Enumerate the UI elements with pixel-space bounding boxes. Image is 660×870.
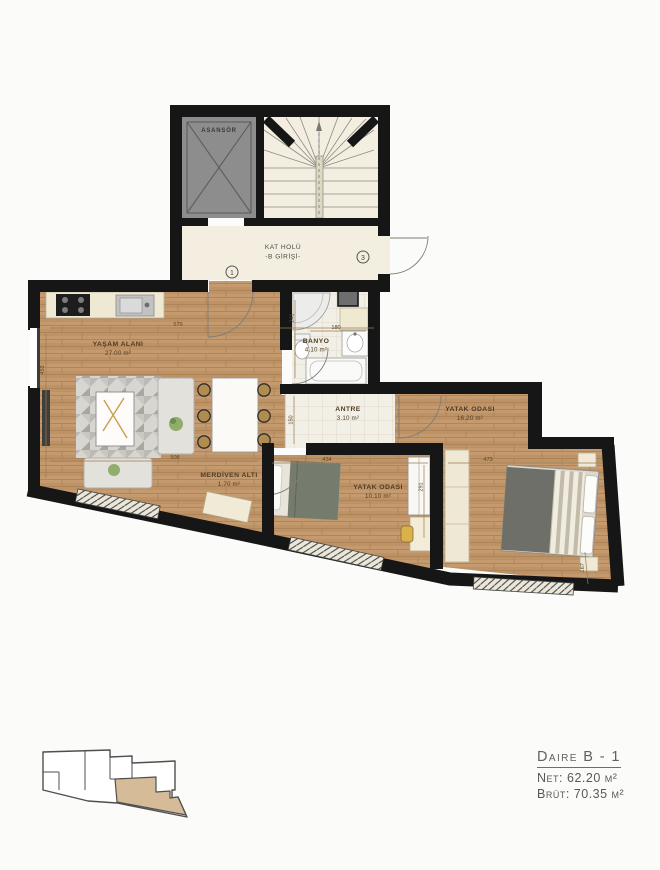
unit-title: Daire B - 1 — [537, 748, 621, 768]
entry-hall-area: 3.10 m² — [337, 415, 359, 422]
desk-chair — [401, 526, 413, 542]
dim-bathroom-left: 241 — [290, 313, 296, 322]
living-room-name: YAŞAM ALANI — [93, 341, 144, 348]
hall-label-line1: KAT HOLÜ — [265, 243, 301, 251]
dim-living-top: 579 — [173, 322, 182, 328]
bathroom-name: BANYO — [303, 338, 330, 345]
pillow — [580, 516, 595, 554]
living-room-area: 27.00 m² — [105, 350, 131, 357]
bedroom-small-area: 10.10 m² — [365, 493, 391, 500]
pillow — [583, 475, 598, 513]
hall-label-line2: -B GİRİŞİ- — [265, 252, 300, 261]
blanket — [501, 467, 557, 553]
plant — [108, 464, 120, 476]
dim-bathroom-top: 180 — [331, 325, 340, 331]
stove — [56, 294, 90, 316]
brut-label: Brüt: — [537, 787, 570, 801]
bedroom-large-area: 16.20 m² — [457, 415, 483, 422]
floor-plan-stage: 579 453 508 241 180 150 434 291 473 167 … — [0, 0, 660, 865]
duvet — [549, 470, 585, 555]
sofa-chaise — [158, 378, 194, 454]
dim-entry-left: 150 — [289, 415, 295, 424]
nightstand — [578, 453, 596, 467]
dining-table — [212, 378, 258, 452]
door-number-1: 1 — [230, 270, 234, 277]
door-number-3: 3 — [361, 255, 365, 262]
bedroom-large-name: YATAK ODASI — [445, 406, 495, 413]
dim-living-left: 453 — [40, 365, 46, 374]
kitchen-counter — [46, 292, 164, 318]
dim-bedroom-small-top: 434 — [322, 457, 331, 463]
net-value: 62.20 m² — [567, 771, 617, 785]
dim-bedroom-large-top: 473 — [483, 457, 492, 463]
floor-plan-drawing: 579 453 508 241 180 150 434 291 473 167 … — [0, 0, 660, 865]
double-bed — [501, 465, 599, 557]
entry-hall-name: ANTRE — [335, 406, 360, 413]
hall-exit-door-arc — [390, 236, 428, 274]
entry-door-threshold — [209, 281, 252, 292]
net-area-row: Net: 62.20 m² — [537, 771, 624, 787]
key-plan — [43, 750, 187, 817]
brut-area-row: Brüt: 70.35 m² — [537, 787, 624, 803]
wardrobe — [445, 450, 469, 562]
hall-door-threshold — [378, 236, 390, 274]
net-label: Net: — [537, 771, 563, 785]
under-stairs-name: MERDİVEN ALTI — [200, 471, 257, 479]
bathroom-area: 4.10 m² — [305, 347, 327, 354]
bedroom-small-name: YATAK ODASI — [353, 484, 403, 491]
brut-value: 70.35 m² — [574, 787, 624, 801]
bath-counter — [340, 308, 368, 330]
dim-bedroom-large-right: 167 — [580, 563, 587, 573]
desk — [410, 517, 433, 551]
dim-living-bottom: 508 — [170, 455, 179, 461]
under-stairs-area: 1.70 m² — [218, 481, 240, 488]
dim-bedroom-small-right: 291 — [419, 482, 425, 491]
unit-info-block: Daire B - 1 Net: 62.20 m² Brüt: 70.35 m² — [537, 747, 624, 802]
elevator-label: ASANSÖR — [201, 127, 237, 134]
